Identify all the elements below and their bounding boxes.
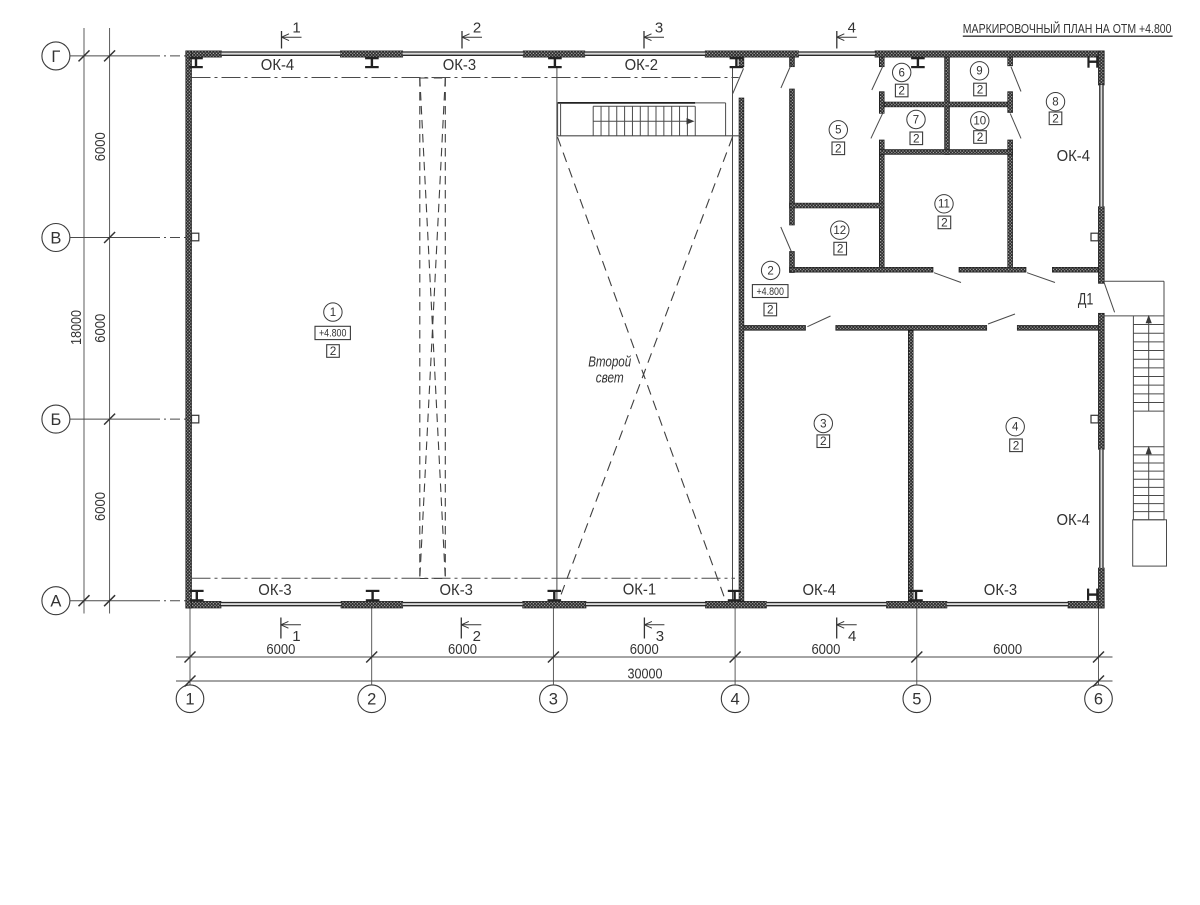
svg-text:3: 3 (656, 628, 664, 645)
svg-text:8: 8 (1052, 97, 1058, 109)
svg-text:ОК-3: ОК-3 (440, 582, 474, 599)
svg-text:4: 4 (848, 628, 856, 645)
svg-text:3: 3 (549, 691, 558, 709)
svg-text:ОК-3: ОК-3 (984, 582, 1018, 599)
svg-text:2: 2 (367, 691, 376, 709)
svg-text:30000: 30000 (628, 666, 663, 682)
svg-text:6000: 6000 (93, 492, 109, 521)
svg-text:2: 2 (767, 303, 774, 317)
svg-text:ОК-4: ОК-4 (1057, 148, 1091, 165)
svg-text:6: 6 (1094, 691, 1103, 709)
svg-text:МАРКИРОВОЧНЫЙ ПЛАН НА ОТМ +4.8: МАРКИРОВОЧНЫЙ ПЛАН НА ОТМ +4.800 (963, 21, 1172, 36)
svg-text:2: 2 (941, 215, 948, 229)
svg-text:2: 2 (767, 265, 773, 277)
svg-text:1: 1 (185, 691, 194, 709)
svg-text:2: 2 (837, 242, 844, 256)
svg-text:6000: 6000 (93, 132, 109, 161)
svg-text:6000: 6000 (93, 314, 109, 343)
svg-text:2: 2 (473, 628, 481, 645)
svg-text:свет: свет (596, 369, 624, 386)
svg-text:6000: 6000 (266, 642, 295, 658)
svg-text:2: 2 (330, 344, 337, 358)
svg-text:Д1: Д1 (1078, 289, 1094, 308)
svg-text:ОК-2: ОК-2 (625, 57, 658, 74)
svg-text:2: 2 (913, 131, 920, 145)
svg-text:2: 2 (977, 83, 984, 97)
svg-text:2: 2 (1052, 111, 1059, 125)
svg-text:3: 3 (655, 20, 663, 37)
svg-text:ОК-3: ОК-3 (443, 57, 477, 74)
svg-text:ОК-1: ОК-1 (623, 582, 657, 599)
svg-text:1: 1 (292, 20, 300, 37)
svg-text:Второй: Второй (588, 354, 631, 371)
svg-text:9: 9 (976, 66, 982, 78)
svg-text:В: В (50, 229, 61, 247)
svg-text:2: 2 (820, 434, 827, 448)
svg-text:5: 5 (912, 691, 921, 709)
svg-text:6000: 6000 (630, 642, 659, 658)
svg-text:ОК-4: ОК-4 (261, 57, 295, 74)
svg-text:6: 6 (898, 67, 904, 79)
svg-text:2: 2 (473, 20, 481, 37)
svg-text:10: 10 (973, 116, 986, 128)
svg-text:2: 2 (898, 84, 905, 98)
svg-text:6000: 6000 (811, 642, 840, 658)
svg-text:Б: Б (50, 411, 61, 429)
svg-text:11: 11 (938, 199, 950, 211)
svg-text:А: А (50, 593, 61, 611)
svg-text:1: 1 (330, 307, 336, 319)
svg-text:12: 12 (833, 225, 846, 237)
svg-text:6000: 6000 (993, 642, 1022, 658)
svg-text:+4.800: +4.800 (756, 286, 784, 298)
svg-text:7: 7 (913, 114, 919, 126)
svg-text:4: 4 (731, 691, 740, 709)
svg-text:3: 3 (820, 418, 826, 430)
svg-text:ОК-3: ОК-3 (258, 582, 292, 599)
svg-text:Г: Г (51, 48, 60, 66)
svg-text:1: 1 (292, 628, 300, 645)
svg-text:+4.800: +4.800 (319, 328, 347, 340)
svg-text:5: 5 (835, 125, 841, 137)
svg-text:2: 2 (1013, 438, 1020, 452)
svg-text:2: 2 (977, 130, 984, 144)
svg-text:2: 2 (835, 141, 842, 155)
svg-text:ОК-4: ОК-4 (1057, 512, 1091, 529)
svg-text:ОК-4: ОК-4 (803, 582, 837, 599)
svg-text:18000: 18000 (69, 310, 85, 345)
svg-text:4: 4 (848, 20, 856, 37)
svg-text:4: 4 (1012, 422, 1019, 434)
